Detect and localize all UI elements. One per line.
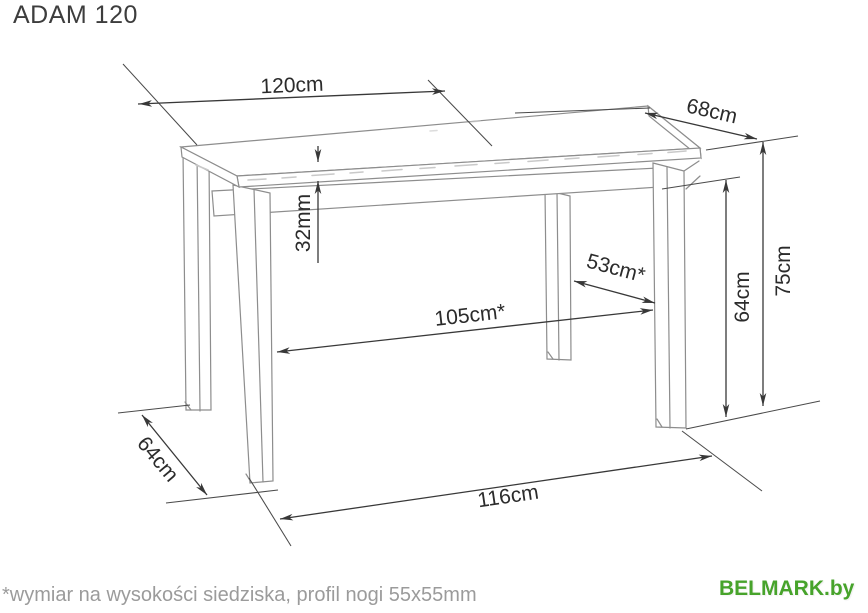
- table-dimension-drawing: 120cm 68cm 32mm 105cm* 53cm* 64cm 75cm 6…: [0, 0, 868, 613]
- table-leg-back-right: [545, 190, 571, 360]
- dim-label-top-thickness: 32mm: [292, 194, 315, 252]
- dim-label-top-length: 120cm: [260, 73, 324, 99]
- diagram-canvas: ADAM 120: [0, 0, 868, 613]
- dim-label-clearance-height: 64cm: [731, 271, 754, 322]
- dim-label-floor-length: 116cm: [476, 481, 540, 513]
- table-leg-front-left: [233, 185, 273, 483]
- dim-label-inner-depth: 53cm*: [584, 250, 647, 288]
- table-leg-back-left: [183, 152, 211, 411]
- brand-logo: BELMARK.by: [719, 577, 854, 601]
- dim-label-floor-depth: 64cm: [132, 432, 183, 486]
- dim-label-total-height: 75cm: [772, 245, 795, 296]
- footnote: *wymiar na wysokości siedziska, profil n…: [2, 584, 477, 607]
- table-leg-front-right: [653, 163, 686, 428]
- dim-label-inner-length: 105cm*: [433, 300, 506, 331]
